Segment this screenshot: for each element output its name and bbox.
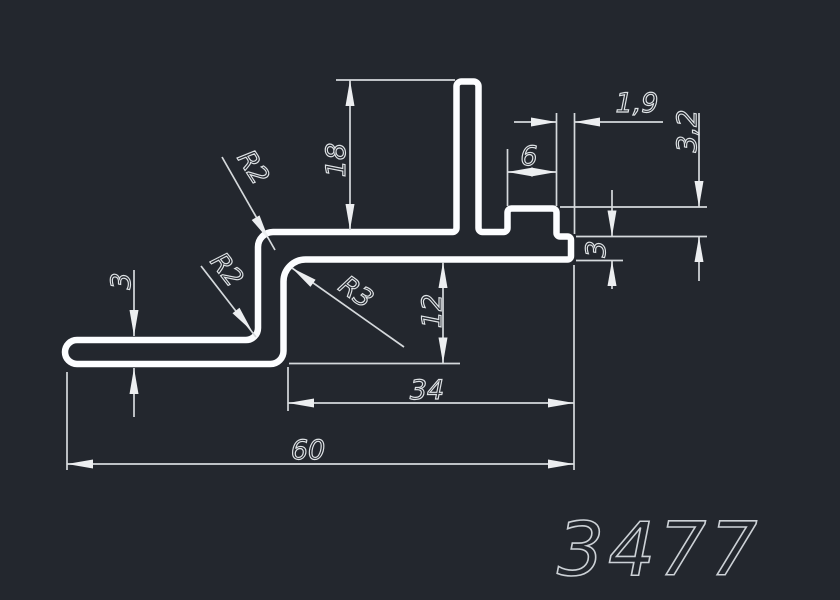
dim-label-6: 6 (520, 141, 537, 172)
arrowhead-down (439, 338, 448, 364)
dimension-overall-width: 60 (67, 372, 574, 470)
arrowhead-left (67, 460, 93, 469)
radius-callout-r3: R3 (292, 268, 404, 347)
arrowhead-leader (292, 268, 316, 287)
dim-label-60: 60 (291, 435, 325, 466)
arrowhead-up (346, 80, 355, 106)
arrowhead-up (608, 261, 617, 287)
part-number: 3477 (557, 507, 761, 593)
dim-label-18: 18 (321, 143, 352, 177)
dim-label-3-right: 3 (581, 240, 612, 257)
arrowhead-left (575, 118, 601, 127)
arrowhead-down (695, 181, 704, 207)
arrowhead-right (548, 460, 574, 469)
arrowhead-down (130, 310, 139, 336)
dim-label-3-left: 3 (106, 272, 137, 289)
arrowhead-right (548, 399, 574, 408)
arrowhead-up (439, 262, 448, 288)
profile-outline-group (65, 82, 571, 365)
profile-drawing: 18 1,9 3,2 6 3 (0, 0, 840, 600)
dimension-step-depth: 12 (289, 262, 460, 364)
arrowhead-up (130, 368, 139, 394)
radius-label-r3: R3 (333, 270, 379, 315)
cad-drawing-canvas: 18 1,9 3,2 6 3 (0, 0, 840, 600)
profile-outline (65, 82, 571, 365)
dim-label-3-2: 3,2 (672, 110, 703, 153)
dim-label-34: 34 (410, 375, 444, 406)
dimension-fin-height: 18 (321, 80, 455, 230)
arrowhead-down (608, 211, 617, 237)
dimension-foot-thickness: 3 (106, 270, 139, 417)
arrowhead-up (695, 237, 704, 263)
dimension-boss-width: 6 (508, 141, 557, 206)
dimension-right-lip-thickness: 3 (576, 190, 623, 289)
dim-label-12: 12 (417, 294, 448, 328)
radius-callout-r2-lower: R2 (201, 247, 256, 337)
arrowhead-right (531, 118, 557, 127)
dim-label-1-9: 1,9 (616, 88, 659, 119)
arrowhead-leader (233, 308, 253, 331)
arrowhead-left (288, 399, 314, 408)
radius-label-r2-lower: R2 (204, 247, 249, 293)
arrowhead-down (346, 204, 355, 230)
